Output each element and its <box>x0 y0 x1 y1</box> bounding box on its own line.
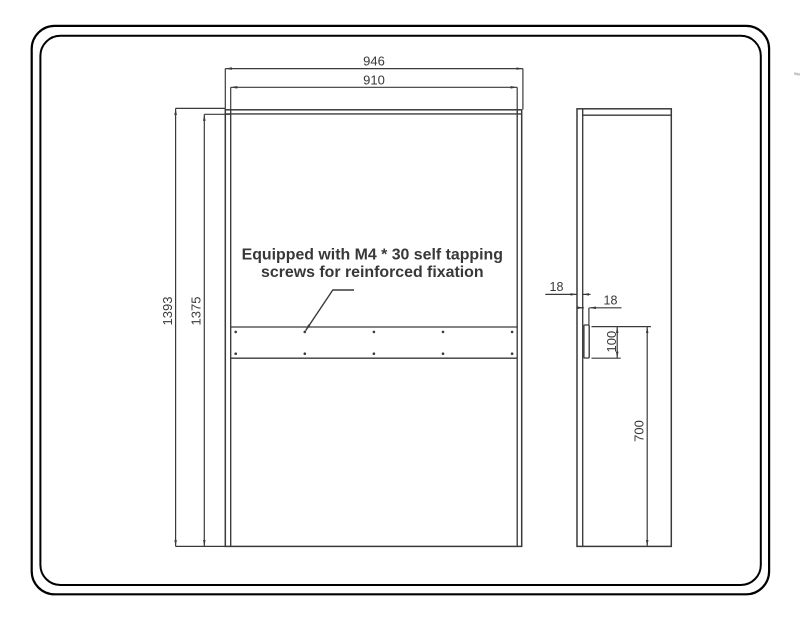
svg-text:910: 910 <box>363 72 385 87</box>
svg-text:Equipped with M4 * 30 self tap: Equipped with M4 * 30 self tapping <box>242 246 503 263</box>
svg-text:100: 100 <box>604 331 619 353</box>
svg-text:946: 946 <box>363 54 385 69</box>
svg-text:700: 700 <box>632 420 647 442</box>
svg-text:screws for reinforced fixation: screws for reinforced fixation <box>261 264 484 281</box>
svg-text:1375: 1375 <box>189 297 204 326</box>
svg-text:18: 18 <box>550 280 564 294</box>
svg-text:1393: 1393 <box>160 297 175 326</box>
svg-text:18: 18 <box>604 293 618 307</box>
